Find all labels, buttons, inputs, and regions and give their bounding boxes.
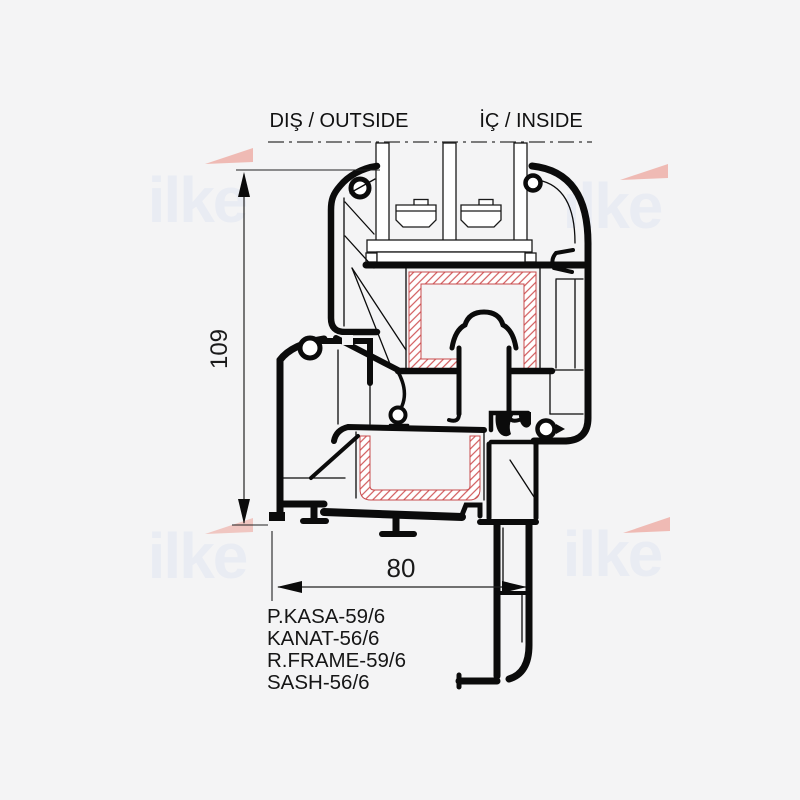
dimension-width-value: 80: [387, 553, 416, 583]
outside-label: DIŞ / OUTSIDE: [270, 110, 409, 132]
watermark-text: ilke: [563, 170, 662, 242]
glass-pane-outer: [376, 143, 389, 241]
dimension-height-value: 109: [206, 329, 233, 369]
watermark-text: ilke: [148, 164, 247, 236]
spec-line-kanat: KANAT-56/6: [267, 627, 379, 650]
gasket-curl-frame-top: [300, 338, 320, 358]
glass-pane-inner: [514, 143, 527, 241]
watermark-bottom-right: ilke: [563, 517, 670, 590]
watermark-text: ilke: [563, 518, 662, 590]
spec-line-pkasa: P.KASA-59/6: [267, 605, 385, 628]
glazing-bridge: [366, 240, 536, 264]
watermark-text: ilke: [148, 520, 247, 592]
watermark-bottom-left: ilke: [148, 518, 253, 592]
spec-line-rframe: R.FRAME-59/6: [267, 649, 406, 672]
glass-pane-middle: [443, 143, 456, 241]
inside-label: İÇ / INSIDE: [479, 109, 582, 132]
technical-drawing-page: ilke ilke ilke ilke DIŞ / OUTSIDE İÇ / I…: [0, 0, 800, 800]
spec-line-sash: SASH-56/6: [267, 671, 370, 694]
gasket-curl-inner: [538, 421, 555, 438]
section-drawing: ilke ilke ilke ilke DIŞ / OUTSIDE İÇ / I…: [0, 0, 800, 800]
gasket-curl-bead: [526, 176, 541, 191]
